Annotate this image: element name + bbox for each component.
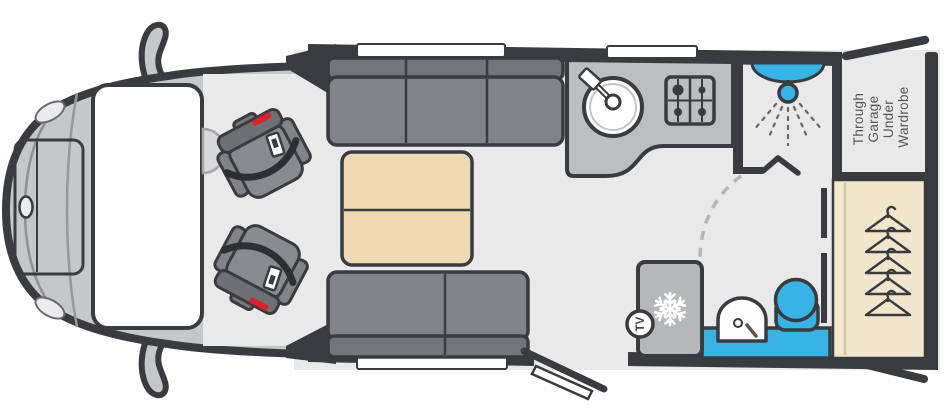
wall-garage-left	[832, 52, 842, 178]
window-kitchen	[607, 46, 697, 58]
wall-washroom-seg1	[821, 188, 827, 238]
dinette-table	[342, 152, 472, 265]
washbasin-icon	[718, 298, 766, 341]
tv-point: TV	[627, 311, 653, 337]
sofa-nearside	[328, 272, 528, 357]
window-lounge-top	[357, 44, 505, 57]
windscreen	[93, 85, 202, 328]
motorhome-floorplan: TV Through Garage Under Wardrobe	[0, 0, 950, 420]
window-lounge-bottom	[357, 357, 507, 369]
badge-icon	[20, 197, 33, 218]
floorplan-stage: TV Through Garage Under Wardrobe	[0, 0, 950, 420]
sofa-offside	[328, 58, 563, 145]
tv-label: TV	[635, 316, 647, 331]
fridge	[638, 262, 702, 356]
hob-icon	[666, 77, 714, 124]
wall-washroom-seg2	[821, 253, 827, 323]
wardrobe	[833, 180, 925, 358]
wall-rear	[925, 52, 938, 368]
toilet-icon	[776, 280, 817, 321]
